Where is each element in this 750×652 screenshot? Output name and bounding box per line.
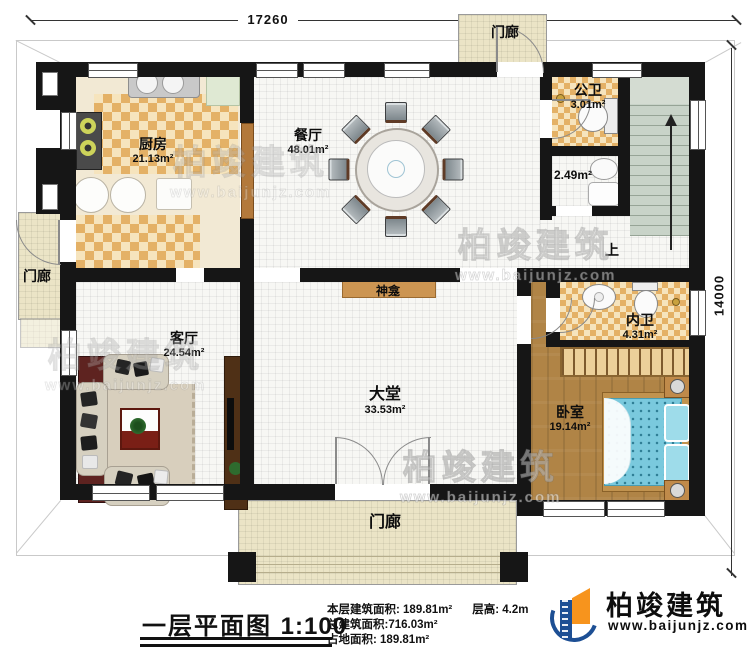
towel-hook (672, 298, 680, 306)
room-area: 2.49m² (542, 168, 604, 182)
window (690, 100, 706, 150)
kitchen-round-table (73, 177, 109, 213)
stat-floor-area: 本层建筑面积: 189.81m² (327, 603, 452, 618)
water-heater (588, 182, 620, 206)
logo-icon (548, 584, 602, 642)
shrine-label: 神龛 (358, 282, 418, 299)
wall (204, 268, 254, 282)
door-leaf (58, 220, 60, 264)
wall (517, 344, 531, 500)
stat-total-area: 总建筑面积:716.03m² (327, 618, 438, 633)
door-opening (60, 220, 76, 262)
wall-niche (42, 72, 58, 96)
wall (546, 282, 560, 298)
hall-floor (254, 282, 517, 484)
dimension-line-top (30, 20, 737, 21)
window (690, 290, 706, 336)
stat-footprint-area: 占地面积: 189.81m² (327, 633, 429, 648)
kitchen-checker-floor (76, 215, 200, 268)
stairs-up-label: 上 (600, 240, 624, 260)
bed-pillow (664, 404, 690, 442)
dining-chair (385, 216, 407, 237)
room-name: 卧室 (530, 404, 610, 421)
nightstand-lamp (670, 483, 685, 498)
room-label-ensuite: 内卫 4.31m² (600, 312, 680, 342)
porch-step-line (240, 556, 512, 557)
window (61, 330, 77, 376)
wall (300, 268, 460, 282)
wall (517, 282, 531, 296)
dining-chair (443, 159, 464, 181)
stair-landing (630, 76, 689, 104)
drawing-title: 一层平面图 1:100 (142, 606, 347, 641)
window (88, 63, 138, 78)
window (61, 112, 77, 150)
area-stats: 本层建筑面积: 189.81m² 层高: 4.2m 总建筑面积:716.03m²… (327, 603, 529, 648)
stove-burner (80, 140, 96, 156)
nightstand-lamp (670, 379, 685, 394)
porch-step-line (240, 572, 512, 573)
porch-step-line (240, 564, 512, 565)
dimension-width-label: 17260 (238, 12, 298, 27)
room-area: 3.01m² (558, 99, 618, 112)
wall (540, 146, 630, 156)
bed-pillow (664, 444, 690, 484)
room-name: 公卫 (558, 82, 618, 99)
wall (517, 268, 689, 282)
window (384, 63, 430, 78)
stat-floor-height: 层高: 4.2m (472, 603, 528, 618)
room-label-kitchen: 厨房 21.13m² (113, 136, 193, 166)
brand-url: www.baijunjz.com (608, 618, 749, 633)
room-label-utility: 2.49m² (542, 168, 604, 182)
sofa-pillow (153, 469, 168, 484)
logo-building-blue (560, 600, 572, 638)
wall (240, 282, 254, 484)
room-area: 19.14m² (530, 421, 610, 434)
wall (618, 76, 630, 216)
drawing-title-text: 一层平面图 (142, 613, 272, 640)
kitchen-worktable (156, 178, 192, 210)
room-name: 内卫 (600, 312, 680, 329)
stove-burner (80, 118, 96, 134)
sofa-pillow (82, 455, 98, 469)
sofa-pillow (80, 413, 98, 430)
sofa-pillow (115, 359, 132, 376)
coffee-table-plant (130, 418, 146, 434)
kitchen-round-table (110, 177, 146, 213)
brand-logo: 柏竣建筑 www.baijunjz.com (548, 582, 744, 646)
dining-table-center (387, 160, 405, 178)
door-leaf (335, 437, 337, 484)
room-area: 24.54m² (144, 347, 224, 360)
dimension-line-right (731, 48, 732, 576)
tv (227, 398, 234, 450)
room-label-dining: 餐厅 48.01m² (268, 127, 348, 157)
dimension-height-label: 14000 (712, 271, 727, 321)
sliding-door-panel (241, 123, 254, 219)
title-underline (140, 637, 332, 640)
porch-column (228, 552, 256, 582)
porch-column (500, 552, 528, 582)
kitchen-cabinet (206, 72, 240, 106)
room-name: 餐厅 (268, 127, 348, 144)
porch-left-label: 门廊 (11, 266, 63, 286)
title-underline (140, 644, 332, 647)
wall (60, 268, 176, 282)
window (92, 485, 150, 501)
wall-niche (42, 184, 58, 210)
room-area: 21.13m² (113, 153, 193, 166)
room-label-bedroom: 卧室 19.14m² (530, 404, 610, 434)
window (592, 63, 642, 78)
stair-arrow-head (665, 114, 677, 126)
wall (240, 62, 254, 123)
porch-top-label: 门廊 (475, 22, 535, 42)
door-leaf (428, 437, 430, 484)
ensuite-sink-drain (594, 292, 604, 302)
room-name: 大堂 (345, 385, 425, 404)
dining-chair (329, 159, 350, 181)
porch-bottom-label: 门廊 (345, 508, 425, 532)
wardrobe (560, 347, 693, 377)
sofa-pillow (133, 361, 149, 377)
room-area: 48.01m² (268, 144, 348, 157)
window (607, 501, 665, 517)
window (543, 501, 605, 517)
window (303, 63, 345, 78)
wall (540, 206, 556, 216)
room-name: 厨房 (113, 136, 193, 153)
dining-chair (385, 102, 407, 123)
sofa-pillow (80, 435, 97, 451)
window (156, 485, 224, 501)
room-area: 33.53m² (345, 404, 425, 417)
porch-left-step (20, 318, 62, 348)
room-label-hall: 大堂 33.53m² (345, 385, 425, 417)
room-label-living: 客厅 24.54m² (144, 330, 224, 360)
window (256, 63, 298, 78)
sofa-pillow (80, 391, 98, 407)
room-name: 客厅 (144, 330, 224, 347)
room-label-public-bath: 公卫 3.01m² (558, 82, 618, 112)
door-opening (335, 484, 430, 500)
room-area: 4.31m² (600, 329, 680, 342)
floor-plan: 17260 14000 (0, 0, 750, 652)
stair-arrow-line (670, 126, 672, 250)
